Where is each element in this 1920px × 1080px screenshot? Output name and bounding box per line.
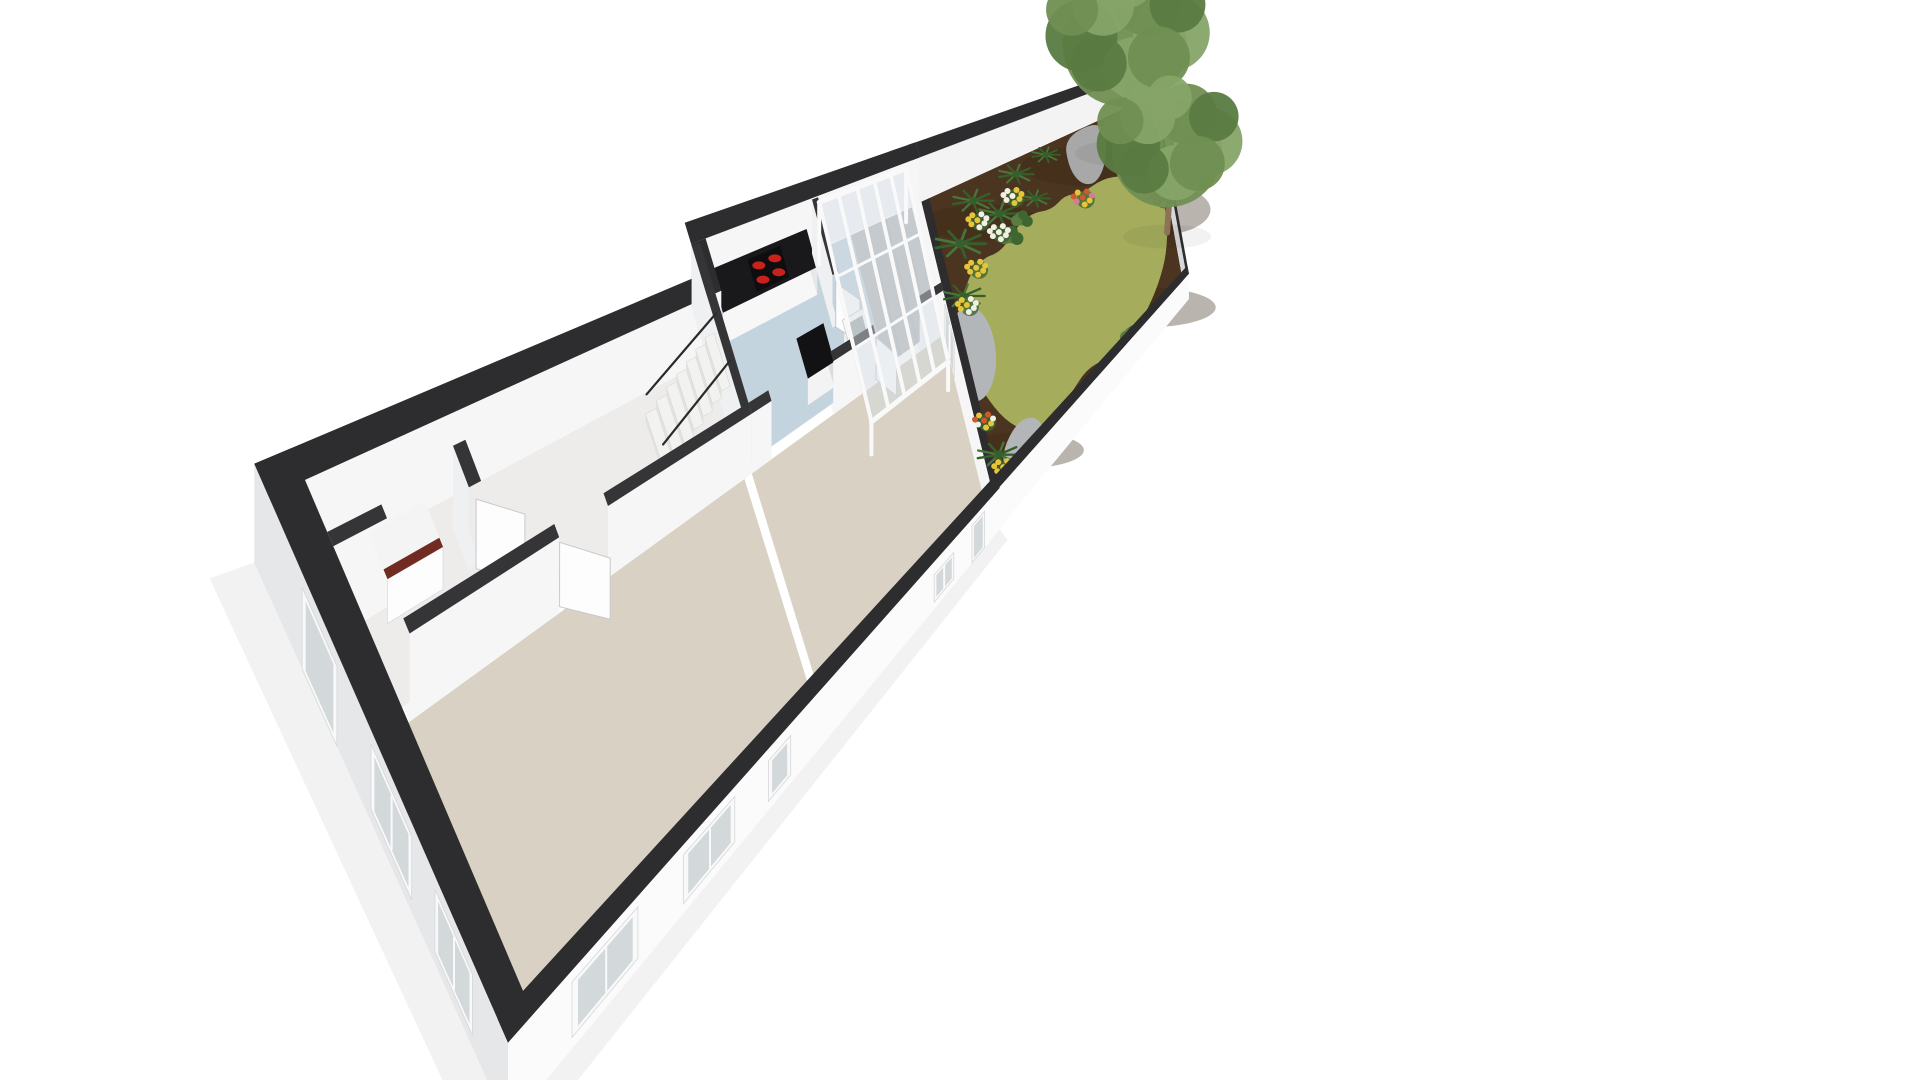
burner: [768, 254, 781, 262]
burner: [752, 261, 765, 269]
floorplan-canvas: [0, 0, 1920, 1080]
wall-kitchen-rear-a: [749, 390, 772, 473]
floorplan-svg: [0, 0, 1920, 1080]
burner: [756, 276, 769, 284]
burner: [772, 268, 785, 276]
